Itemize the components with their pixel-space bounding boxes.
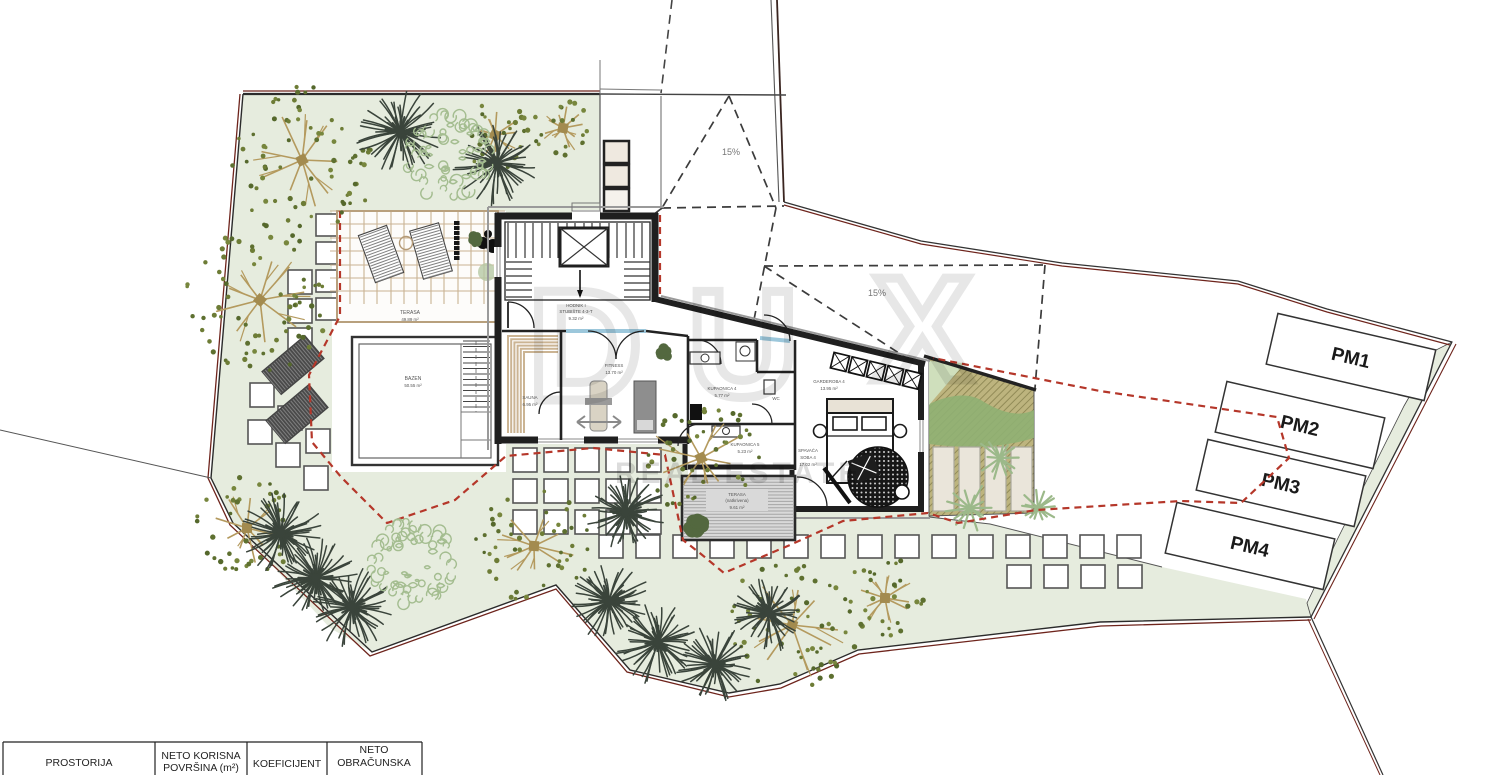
- svg-text:POVRŠINA (m²): POVRŠINA (m²): [163, 761, 239, 774]
- svg-text:NETO: NETO: [360, 744, 389, 756]
- svg-text:9.61 m²: 9.61 m²: [730, 505, 745, 510]
- svg-text:TERASA: TERASA: [728, 492, 746, 497]
- svg-text:OBRAČUNSKA: OBRAČUNSKA: [337, 756, 411, 769]
- svg-text:PROSTORIJA: PROSTORIJA: [46, 757, 113, 769]
- svg-text:SPAVAĆA: SPAVAĆA: [798, 448, 818, 453]
- svg-text:KUPAONICA 5: KUPAONICA 5: [731, 442, 761, 447]
- svg-text:(natkrivena): (natkrivena): [725, 498, 749, 503]
- svg-text:REAL ESTATE: REAL ESTATE: [615, 457, 862, 490]
- svg-text:50.55 m²: 50.55 m²: [404, 383, 422, 388]
- svg-text:X: X: [873, 247, 972, 412]
- svg-text:GARDEROBA 4: GARDEROBA 4: [813, 379, 845, 384]
- svg-text:BAZEN: BAZEN: [405, 376, 422, 382]
- svg-text:49.89 m²: 49.89 m²: [401, 317, 419, 322]
- svg-text:NETO KORISNA: NETO KORISNA: [161, 750, 240, 762]
- svg-text:TERASA: TERASA: [400, 310, 421, 316]
- svg-text:U: U: [688, 259, 798, 429]
- svg-text:KOEFICIJENT: KOEFICIJENT: [253, 758, 322, 770]
- svg-text:13.95 m²: 13.95 m²: [820, 386, 838, 391]
- svg-text:5.23 m²: 5.23 m²: [738, 449, 753, 454]
- svg-text:D: D: [528, 258, 642, 434]
- svg-text:15%: 15%: [722, 147, 740, 157]
